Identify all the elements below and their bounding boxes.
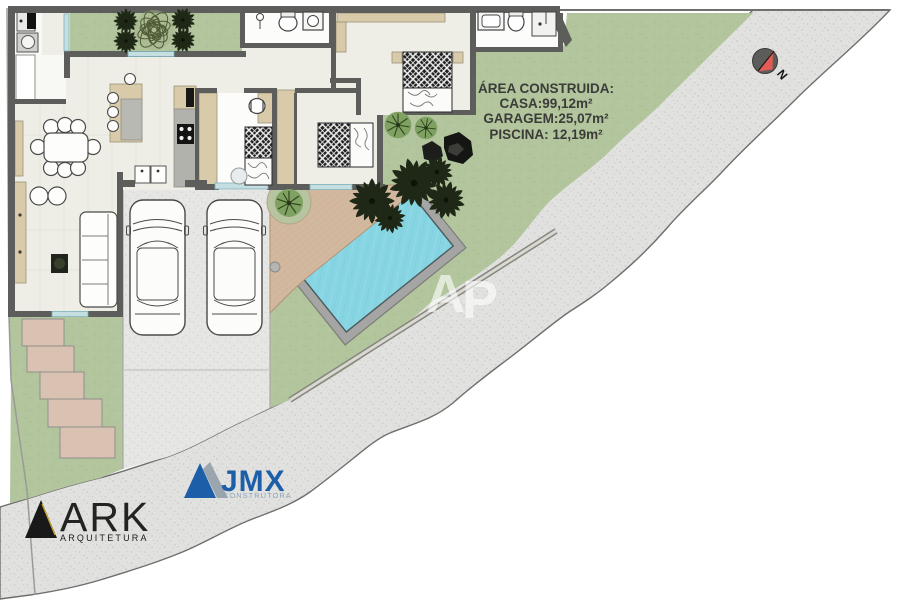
svg-text:A: A: [426, 264, 465, 324]
svg-text:P: P: [462, 270, 498, 330]
svg-text:ARQUITETURA: ARQUITETURA: [60, 533, 149, 543]
svg-text:CONSTRUTORA: CONSTRUTORA: [223, 491, 292, 500]
svg-text:CASA:99,12m²: CASA:99,12m²: [499, 96, 593, 111]
svg-text:ÁREA CONSTRUIDA:: ÁREA CONSTRUIDA:: [478, 81, 614, 96]
svg-text:PISCINA: 12,19m²: PISCINA: 12,19m²: [489, 127, 603, 142]
svg-text:GARAGEM:25,07m²: GARAGEM:25,07m²: [483, 111, 609, 126]
